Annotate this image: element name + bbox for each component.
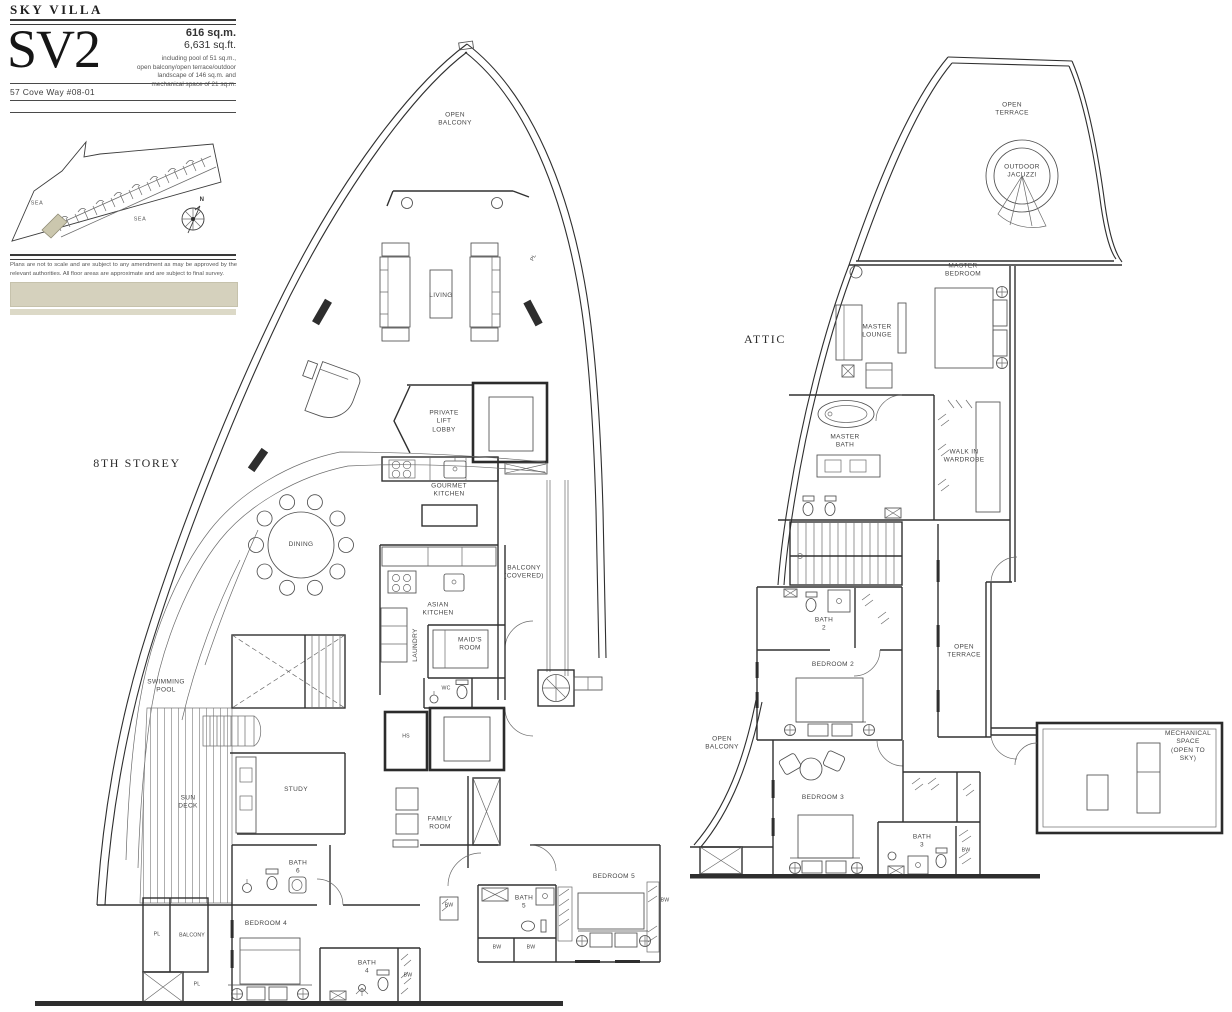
room-label-bath-2: BATH 2 bbox=[815, 617, 833, 634]
legend-strip bbox=[10, 309, 236, 315]
floor8-plan bbox=[35, 41, 660, 1006]
floorplan-page: SKY VILLA SV2 616 sq.m. 6,631 sq.ft. inc… bbox=[0, 0, 1232, 1012]
room-label-maids-room: MAID'S ROOM bbox=[458, 637, 482, 654]
room-label-hs: HS bbox=[402, 734, 410, 741]
label-bw: BW bbox=[962, 848, 971, 855]
area-sqm: 616 sq.m. bbox=[100, 27, 236, 39]
divider-rule bbox=[10, 254, 236, 260]
room-label-dining: DINING bbox=[289, 541, 314, 549]
room-label-balcony: BALCONY bbox=[179, 933, 205, 940]
room-label-outdoor-jacuzzi: OUTDOOR JACUZZI bbox=[1004, 164, 1040, 181]
room-label-family-room: FAMILY ROOM bbox=[428, 816, 453, 833]
area-summary: 616 sq.m. 6,631 sq.ft. including pool of… bbox=[100, 27, 236, 90]
room-label-master-lounge: MASTER LOUNGE bbox=[862, 324, 892, 341]
room-label-bath-6: BATH 6 bbox=[289, 860, 307, 877]
room-label-swimming-pool: SWIMMING POOL bbox=[147, 679, 184, 696]
room-label-open-terrace-side: OPEN TERRACE bbox=[947, 644, 981, 661]
room-label-pl: PL bbox=[154, 932, 161, 939]
divider-rule bbox=[10, 112, 236, 113]
project-title: SKY VILLA bbox=[10, 2, 236, 18]
label-bw: BW bbox=[661, 898, 670, 905]
room-label-bedroom-4: BEDROOM 4 bbox=[245, 920, 287, 928]
unit-address: 57 Cove Way #08-01 bbox=[10, 87, 95, 97]
room-label-study: STUDY bbox=[284, 786, 308, 794]
compass-north-label: N bbox=[200, 197, 205, 205]
label-bw: BW bbox=[493, 945, 502, 952]
legend-block bbox=[10, 282, 238, 307]
room-label-bath-4: BATH 4 bbox=[358, 960, 376, 977]
room-label-pl: PL bbox=[194, 982, 201, 989]
floor8-title: 8TH STOREY bbox=[93, 456, 180, 472]
label-bw: BW bbox=[527, 945, 536, 952]
area-note: including pool of 51 sq.m., open balcony… bbox=[100, 55, 236, 90]
room-label-open-balcony: OPEN BALCONY bbox=[705, 736, 739, 753]
room-label-open-terrace: OPEN TERRACE bbox=[995, 102, 1029, 119]
room-label-bedroom-2: BEDROOM 2 bbox=[812, 661, 854, 669]
divider-rule bbox=[10, 100, 236, 101]
sea-label: SEA bbox=[134, 216, 147, 223]
unit-name: SV2 bbox=[7, 24, 100, 75]
room-label-wc: WC bbox=[442, 686, 451, 693]
room-label-mechanical-space: MECHANICAL SPACE (OPEN TO SKY) bbox=[1165, 730, 1211, 764]
site-plan bbox=[12, 142, 221, 241]
room-label-open-balcony: OPEN BALCONY bbox=[438, 112, 472, 129]
floorplan-drawing bbox=[0, 0, 1232, 1012]
room-label-sun-deck: SUN DECK bbox=[178, 795, 197, 812]
label-bw: BW bbox=[445, 903, 454, 910]
room-label-bath-5: BATH 5 bbox=[515, 895, 533, 912]
room-label-bath-3: BATH 3 bbox=[913, 834, 931, 851]
room-label-master-bedroom: MASTER BEDROOM bbox=[945, 263, 981, 280]
attic-title: ATTIC bbox=[744, 332, 786, 348]
room-label-gourmet-kitchen: GOURMET KITCHEN bbox=[431, 483, 467, 500]
sea-label: SEA bbox=[31, 200, 44, 207]
room-label-private-lift-lobby: PRIVATE LIFT LOBBY bbox=[429, 409, 458, 434]
room-label-walk-in-wardrobe: WALK IN WARDROBE bbox=[944, 449, 985, 466]
attic-plan bbox=[690, 57, 1222, 879]
room-label-laundry: LAUNDRY bbox=[412, 628, 420, 661]
room-label-bedroom-5: BEDROOM 5 bbox=[593, 873, 635, 881]
disclaimer-text: Plans are not to scale and are subject t… bbox=[10, 261, 237, 279]
room-label-living: LIVING bbox=[429, 292, 452, 300]
divider-rule bbox=[10, 83, 236, 84]
room-label-bedroom-3: BEDROOM 3 bbox=[802, 794, 844, 802]
room-label-balcony-covered: BALCONY (COVERED) bbox=[504, 565, 544, 582]
room-label-master-bath: MASTER BATH bbox=[830, 434, 859, 451]
room-label-asian-kitchen: ASIAN KITCHEN bbox=[423, 602, 454, 619]
label-bw: BW bbox=[404, 973, 413, 980]
area-sqft: 6,631 sq.ft. bbox=[100, 39, 236, 51]
